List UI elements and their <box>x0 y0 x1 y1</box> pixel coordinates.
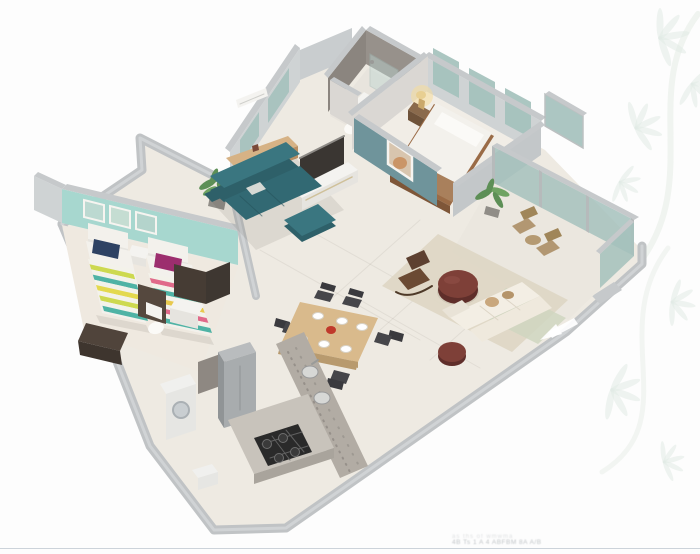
page-edge-strip <box>0 548 700 554</box>
floor-plan-svg <box>0 0 700 554</box>
floor-plan-render: as ths of wmwma 4B Ts 1 A 4 ABFBM 8A A/B <box>0 0 700 554</box>
